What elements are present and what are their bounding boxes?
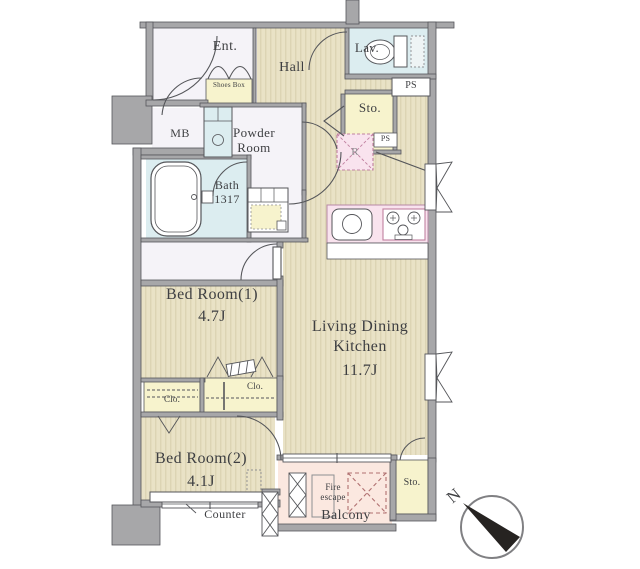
room-label-powder-room: Powder Room	[218, 125, 290, 155]
label-counter: Counter	[197, 508, 253, 522]
room-label-ent: Ent.	[197, 39, 253, 55]
label-closet-left: Clo.	[155, 394, 189, 404]
casement-window-lower	[425, 352, 452, 402]
bath-size: 1317	[214, 192, 240, 206]
room-label-ldk-line1: Living Dining	[292, 318, 428, 336]
label-shoes-box: Shoes Box	[207, 81, 251, 89]
label-pipe-space-mid: PS	[374, 134, 397, 143]
room-label-balcony: Balcony	[316, 508, 376, 524]
floorplan-canvas: Ent. Hall Lav. Sto. PS PS R MB Powder Ro…	[0, 0, 640, 569]
bedroom1-door-leaf	[273, 247, 281, 279]
room-label-lav: Lav.	[348, 41, 386, 56]
room-size-ldk: 11.7J	[292, 362, 428, 380]
compass	[461, 496, 523, 558]
balcony-sliding-window	[283, 453, 391, 463]
label-refrigerator: R	[345, 146, 365, 159]
room-label-storage-top: Sto.	[345, 101, 395, 116]
room-label-bath: Bath1317	[203, 179, 251, 206]
evacuation-hatch	[289, 473, 306, 517]
room-size-bedroom1: 4.7J	[147, 308, 277, 326]
room-size-bedroom2: 4.1J	[136, 473, 266, 491]
room-label-hall: Hall	[262, 60, 322, 76]
washing-machine-space	[248, 188, 288, 232]
room-label-bedroom2: Bed Room(2)	[136, 450, 266, 468]
label-pipe-space-top: PS	[392, 80, 430, 92]
label-closet-right: Clo.	[238, 381, 272, 391]
label-meter-box: MB	[160, 127, 200, 141]
pipe-shaft-xbox	[262, 492, 278, 536]
room-label-ldk-line2: Kitchen	[292, 338, 428, 356]
room-label-storage-bottom: Sto.	[394, 477, 430, 489]
bath-name: Bath	[215, 178, 239, 192]
label-fire-escape: Fire escape	[312, 482, 354, 502]
casement-window-upper	[425, 162, 452, 212]
kitchen-counter	[327, 205, 428, 259]
room-label-bedroom1: Bed Room(1)	[147, 286, 277, 304]
stove	[383, 209, 425, 240]
